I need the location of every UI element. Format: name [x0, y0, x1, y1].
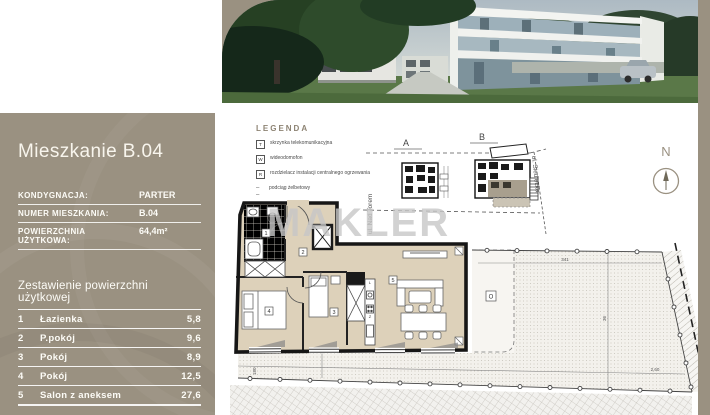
- info-row-floor: KONDYGNACJA: PARTER: [18, 187, 201, 205]
- legend-item-text: podciąg żelbetowy: [269, 185, 310, 192]
- area-table: Zestawienie powierzchni użytkowej 1 Łazi…: [18, 280, 201, 415]
- row-number: 5: [18, 390, 40, 401]
- row-area: 9,6: [187, 333, 201, 344]
- legend-item-text: wideodomofon: [270, 155, 303, 162]
- video-intercom-icon: W: [256, 155, 265, 164]
- compass-needle-icon: [663, 170, 669, 181]
- row-name: Pokój: [40, 371, 181, 382]
- compass-rose: N: [645, 140, 687, 202]
- table-row: 5 Salon z aneksem 27,6: [18, 386, 201, 406]
- flyer-page: Mieszkanie B.04 KONDYGNACJA: PARTER NUME…: [0, 0, 710, 415]
- row-area: 27,6: [181, 390, 201, 401]
- compass-north-label: N: [661, 144, 670, 159]
- legend: LEGENDA T skrzynka telekomunikacyjna W w…: [256, 124, 374, 205]
- dim-garden-width: 341: [561, 257, 569, 262]
- legend-item: W wideodomofon: [256, 155, 374, 164]
- telecom-box-icon: T: [256, 140, 265, 149]
- label-room4: 4: [267, 309, 270, 315]
- building-b-footprint: [475, 144, 530, 207]
- row-name: Salon z aneksem: [40, 390, 181, 401]
- apartment-title: Mieszkanie B.04: [18, 141, 201, 163]
- between-buildings: [440, 166, 448, 198]
- dim-left: 180: [252, 367, 257, 375]
- area-table-title: Zestawienie powierzchni użytkowej: [18, 280, 201, 310]
- row-area: 5,8: [187, 314, 201, 325]
- table-row: 2 P.pokój 9,6: [18, 329, 201, 348]
- row-area: 12,5: [181, 371, 201, 382]
- info-value: 64,4m²: [139, 226, 201, 236]
- legend-item: – – podciąg żelbetowy: [256, 185, 374, 199]
- info-label: KONDYGNACJA:: [18, 191, 139, 200]
- legend-item-text: rozdzielacz instalacji centralnego ogrze…: [270, 170, 370, 177]
- right-accent-band: [698, 0, 710, 415]
- legend-item: R rozdzielacz instalacji centralnego ogr…: [256, 170, 374, 179]
- table-row: 1 Łazienka 5,8: [18, 310, 201, 329]
- info-label: NUMER MIESZKANIA:: [18, 209, 139, 218]
- row-number: 3: [18, 352, 40, 363]
- info-value: B.04: [139, 208, 201, 218]
- beam-dash-icon: – –: [256, 185, 265, 199]
- row-name: P.pokój: [40, 333, 187, 344]
- row-name: Łazienka: [40, 314, 187, 325]
- heating-manifold-icon: R: [256, 170, 265, 179]
- hall-wardrobe: [245, 261, 285, 277]
- row-number: 4: [18, 371, 40, 382]
- building-render-graphic: [222, 0, 698, 103]
- dining-table: [401, 305, 446, 339]
- label-room3: 3: [332, 310, 335, 316]
- info-row-number: NUMER MIESZKANIA: B.04: [18, 205, 201, 223]
- legend-item-text: skrzynka telekomunikacyjna: [270, 140, 332, 147]
- info-label: POWIERZCHNIA UŻYTKOWA:: [18, 227, 139, 245]
- dim-garden-depth: 36: [602, 315, 607, 321]
- table-row: 3 Pokój 8,9: [18, 348, 201, 367]
- apartment-sidebar: Mieszkanie B.04 KONDYGNACJA: PARTER NUME…: [0, 113, 215, 415]
- legend-item: T skrzynka telekomunikacyjna: [256, 140, 374, 149]
- bed-room4: [242, 291, 286, 329]
- label-hall: 2: [301, 250, 304, 256]
- building-a-footprint: [402, 163, 438, 198]
- row-name: Pokój: [40, 352, 187, 363]
- legend-title: LEGENDA: [256, 124, 374, 133]
- site-plan: A B: [358, 112, 548, 242]
- label-salon: 5: [391, 278, 394, 284]
- tv-unit: [403, 251, 447, 258]
- row-number: 2: [18, 333, 40, 344]
- apartment-info: KONDYGNACJA: PARTER NUMER MIESZKANIA: B.…: [18, 187, 201, 250]
- table-row: 4 Pokój 12,5: [18, 367, 201, 386]
- label-bathroom: 1: [264, 231, 267, 237]
- building-render-photo: [222, 0, 698, 103]
- sofa: [397, 280, 443, 306]
- info-value: PARTER: [139, 190, 201, 200]
- row-area: 8,9: [187, 352, 201, 363]
- label-garden: O: [489, 295, 494, 301]
- row-number: 1: [18, 314, 40, 325]
- dim-garden-strip: 2,60: [651, 367, 660, 372]
- building-b-label: B: [479, 132, 485, 142]
- info-row-area: POWIERZCHNIA UŻYTKOWA: 64,4m²: [18, 223, 201, 250]
- building-a-label: A: [403, 138, 409, 148]
